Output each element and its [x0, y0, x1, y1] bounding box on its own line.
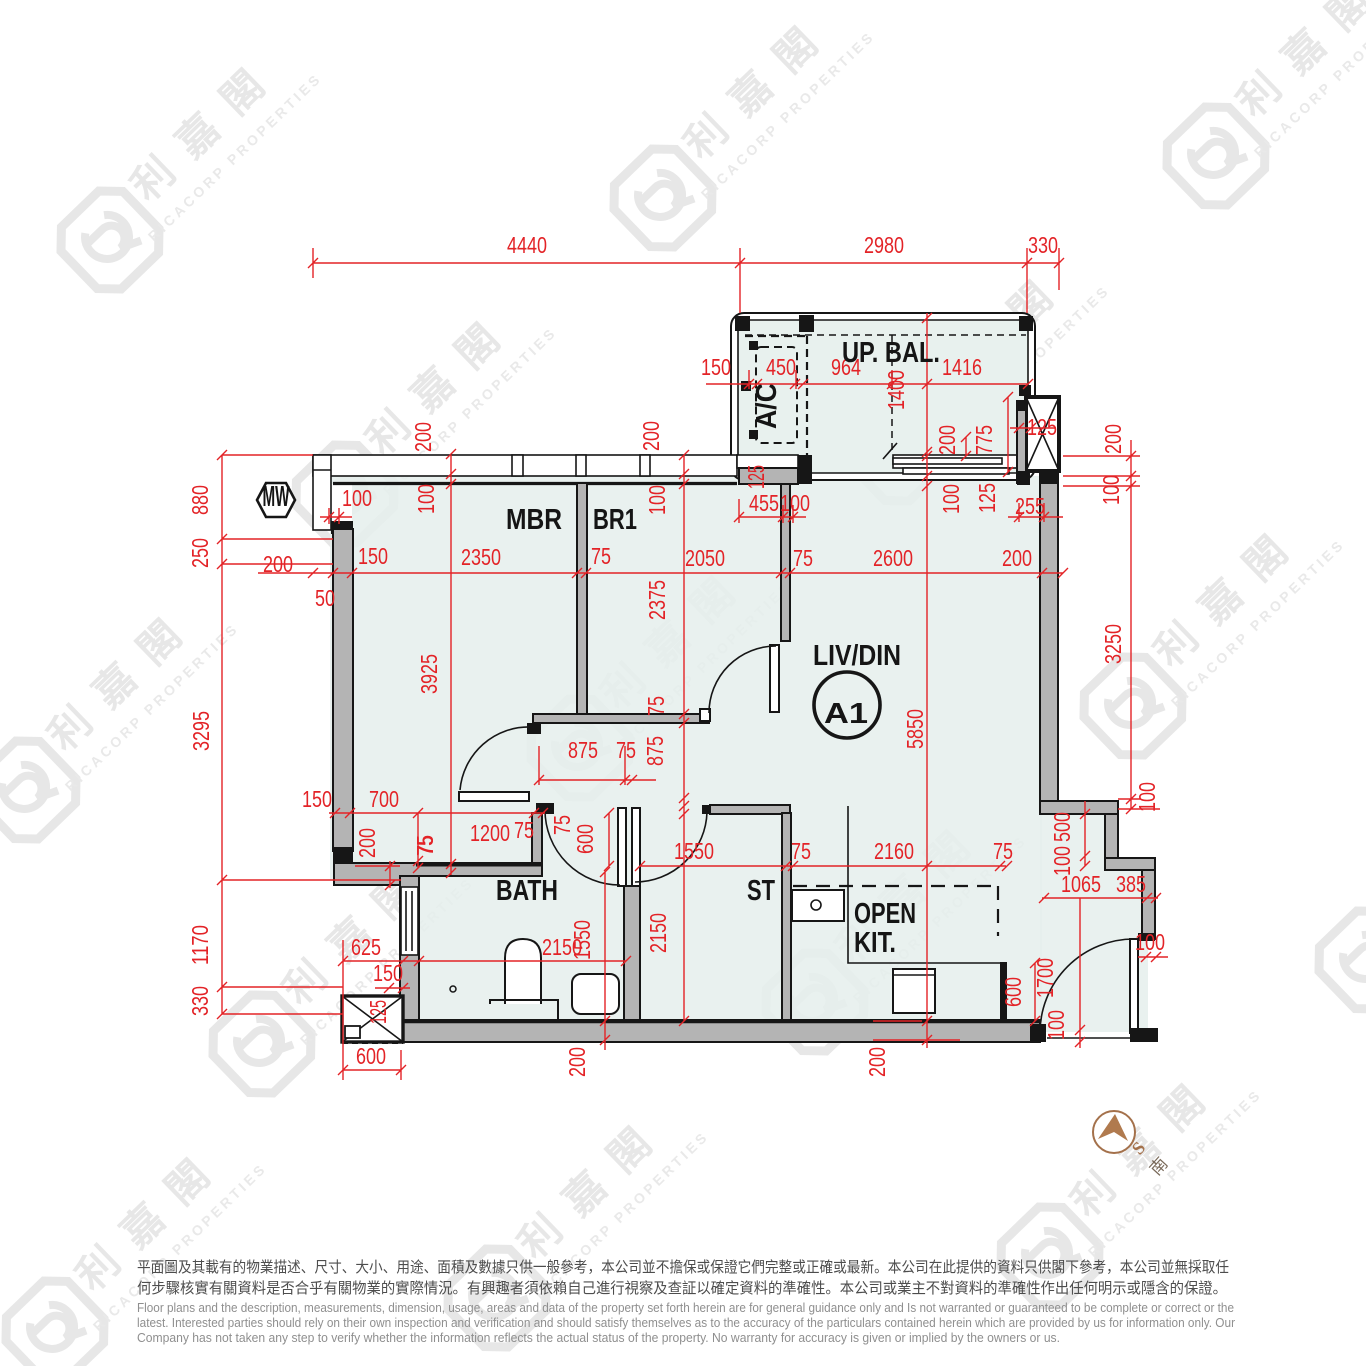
svg-text:250: 250	[187, 538, 213, 568]
svg-text:200: 200	[354, 828, 380, 858]
svg-text:MBR: MBR	[506, 504, 562, 536]
svg-text:100: 100	[1043, 1010, 1069, 1040]
svg-text:3295: 3295	[188, 711, 214, 751]
svg-text:MW: MW	[263, 481, 290, 513]
svg-text:125: 125	[1027, 414, 1057, 440]
svg-text:1416: 1416	[942, 354, 982, 380]
svg-text:平面圖及其載有的物業描述、尺寸、大小、用途、面積及數據只供一: 平面圖及其載有的物業描述、尺寸、大小、用途、面積及數據只供一般參考，本公司並不擔…	[137, 1258, 1229, 1276]
svg-text:200: 200	[638, 421, 664, 451]
svg-text:75: 75	[993, 838, 1013, 864]
svg-text:330: 330	[187, 986, 213, 1016]
svg-text:OPEN: OPEN	[854, 898, 916, 930]
svg-text:455: 455	[749, 490, 779, 516]
svg-text:625: 625	[351, 934, 381, 960]
svg-text:ST: ST	[747, 875, 775, 907]
svg-text:2160: 2160	[874, 838, 914, 864]
svg-text:75: 75	[412, 836, 438, 856]
svg-text:200: 200	[864, 1047, 890, 1077]
svg-text:100: 100	[1098, 475, 1124, 505]
svg-text:75: 75	[616, 737, 636, 763]
svg-text:100: 100	[413, 484, 439, 514]
svg-text:100: 100	[1135, 929, 1165, 955]
svg-text:75: 75	[793, 545, 813, 571]
svg-text:330: 330	[1028, 232, 1058, 258]
svg-text:125: 125	[974, 483, 1000, 513]
svg-text:1170: 1170	[187, 925, 213, 965]
svg-text:700: 700	[369, 786, 399, 812]
svg-text:150: 150	[358, 543, 388, 569]
svg-text:UP. BAL.: UP. BAL.	[842, 337, 940, 369]
svg-text:KIT.: KIT.	[854, 927, 896, 959]
svg-text:150: 150	[701, 354, 731, 380]
svg-text:385: 385	[1116, 871, 1146, 897]
svg-text:600: 600	[356, 1043, 386, 1069]
svg-text:1200: 1200	[470, 820, 510, 846]
svg-text:200: 200	[934, 425, 960, 455]
svg-text:100: 100	[342, 485, 372, 511]
svg-text:2350: 2350	[461, 544, 501, 570]
svg-text:880: 880	[187, 485, 213, 515]
svg-text:LIV/DIN: LIV/DIN	[813, 640, 901, 672]
svg-text:100: 100	[780, 490, 810, 516]
svg-text:75: 75	[514, 817, 534, 843]
svg-text:200: 200	[564, 1047, 590, 1077]
svg-text:600: 600	[572, 824, 598, 854]
svg-text:Company has not taken any step: Company has not taken any step to verify…	[137, 1331, 1060, 1345]
svg-text:450: 450	[766, 354, 796, 380]
svg-text:50: 50	[315, 585, 335, 611]
svg-text:2600: 2600	[873, 545, 913, 571]
svg-text:200: 200	[410, 422, 436, 452]
svg-text:1700: 1700	[1032, 958, 1058, 998]
svg-text:875: 875	[642, 736, 668, 766]
svg-text:200: 200	[1100, 424, 1126, 454]
svg-text:255: 255	[1015, 493, 1045, 519]
svg-text:BATH: BATH	[496, 875, 558, 907]
svg-text:3925: 3925	[416, 654, 442, 694]
svg-text:1550: 1550	[674, 838, 714, 864]
svg-text:150: 150	[373, 960, 403, 986]
svg-text:100: 100	[1134, 782, 1160, 812]
svg-text:125: 125	[743, 465, 769, 489]
svg-text:5850: 5850	[902, 709, 928, 749]
svg-text:875: 875	[568, 737, 598, 763]
svg-text:2980: 2980	[864, 232, 904, 258]
svg-text:latest. Interested parties sho: latest. Interested parties should rely o…	[137, 1316, 1235, 1330]
svg-text:100: 100	[644, 485, 670, 515]
svg-text:A/C: A/C	[751, 383, 783, 429]
svg-text:BR1: BR1	[593, 504, 637, 536]
svg-text:100: 100	[938, 484, 964, 514]
svg-text:2050: 2050	[685, 545, 725, 571]
svg-text:1400: 1400	[883, 370, 909, 410]
svg-text:75: 75	[791, 838, 811, 864]
svg-text:1065: 1065	[1061, 871, 1101, 897]
svg-text:2150: 2150	[645, 913, 671, 953]
svg-text:3250: 3250	[1100, 624, 1126, 664]
svg-text:150: 150	[302, 786, 332, 812]
svg-text:775: 775	[971, 425, 997, 455]
svg-text:75: 75	[591, 543, 611, 569]
svg-text:125: 125	[365, 1000, 391, 1024]
svg-text:500: 500	[1049, 812, 1075, 842]
svg-text:2375: 2375	[644, 580, 670, 620]
svg-text:A1: A1	[824, 698, 868, 730]
svg-text:75: 75	[549, 815, 575, 835]
svg-text:Floor plans and the descriptio: Floor plans and the description, measure…	[137, 1301, 1234, 1315]
svg-text:4440: 4440	[507, 232, 547, 258]
svg-text:200: 200	[1002, 545, 1032, 571]
svg-text:600: 600	[1000, 977, 1026, 1007]
svg-text:何步驟核實有關資料是否合乎有關物業的實際情況。有興趣者須依賴: 何步驟核實有關資料是否合乎有關物業的實際情況。有興趣者須依賴自己進行視察及查証以…	[137, 1279, 1227, 1297]
svg-text:75: 75	[643, 696, 669, 716]
svg-text:2150: 2150	[542, 934, 582, 960]
